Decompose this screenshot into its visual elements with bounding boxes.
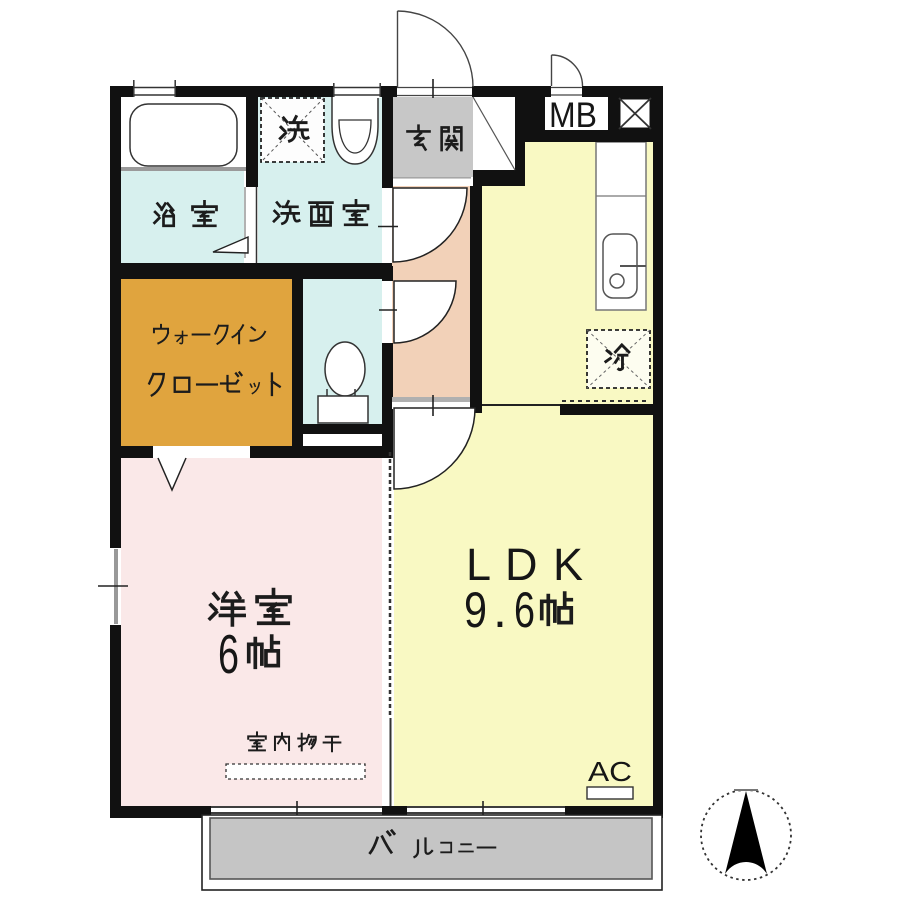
svg-text:6: 6: [514, 582, 535, 638]
svg-text:K: K: [553, 539, 583, 590]
svg-text:6: 6: [218, 623, 239, 685]
svg-text:AC: AC: [588, 756, 632, 787]
svg-text:9: 9: [464, 582, 487, 638]
svg-text:.: .: [493, 582, 507, 638]
svg-text:MB: MB: [549, 96, 597, 135]
